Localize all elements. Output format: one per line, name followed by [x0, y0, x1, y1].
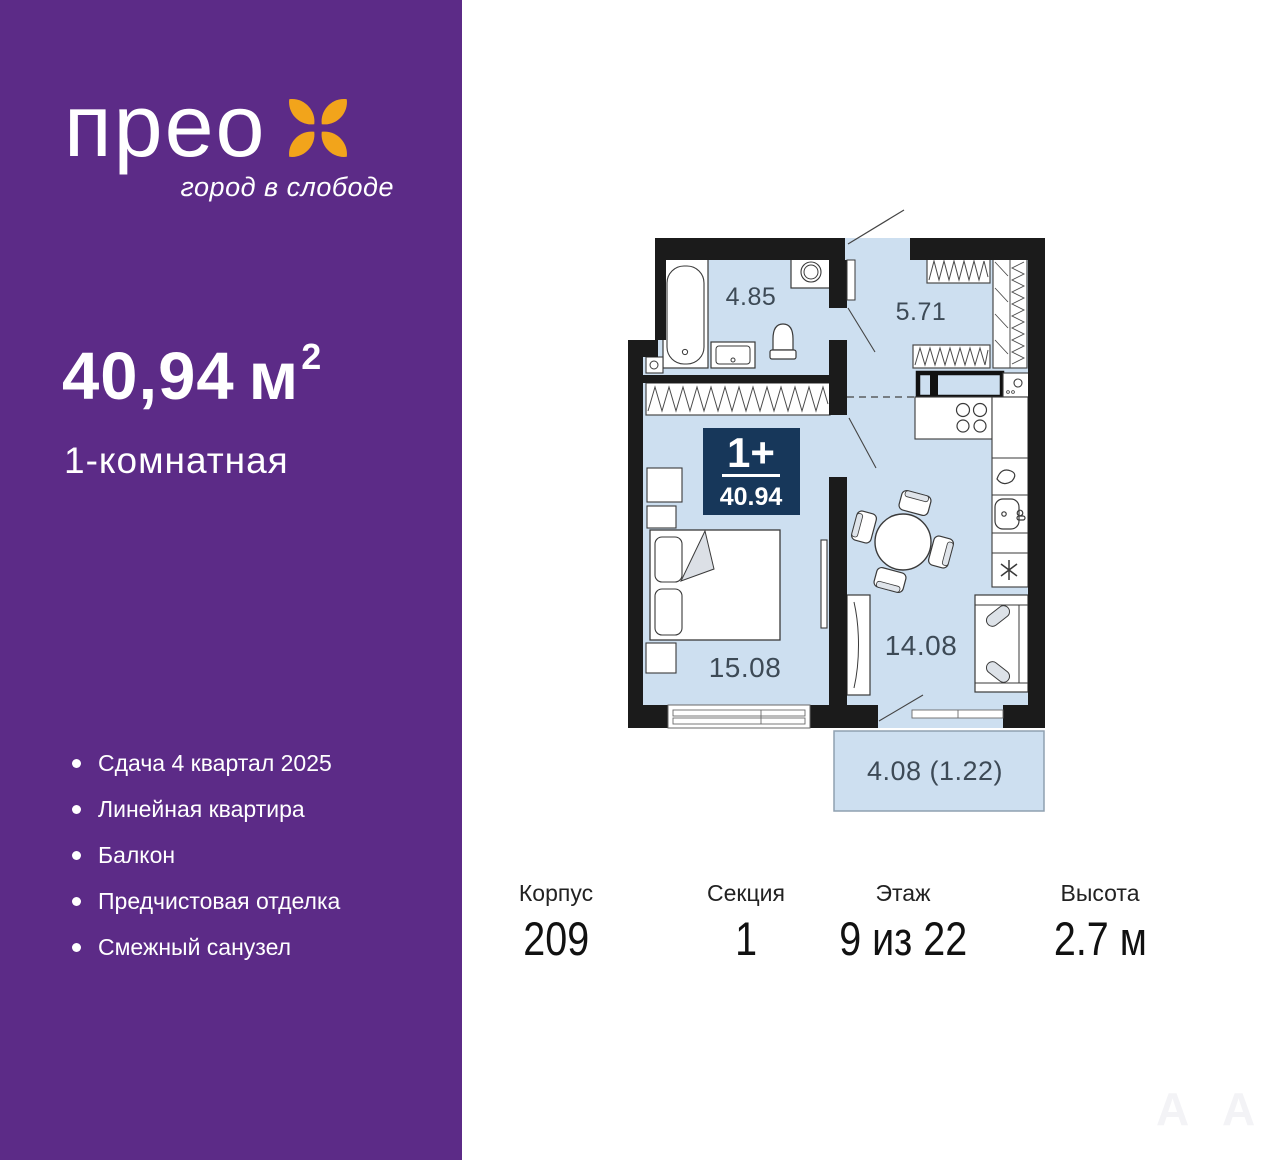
- spec-section: Секция 1: [666, 880, 826, 966]
- apartment-type: 1-комнатная: [64, 440, 289, 482]
- spec-value: 1: [735, 911, 757, 966]
- sofa-icon: [975, 595, 1028, 692]
- watermark-glyph: A: [1222, 1082, 1255, 1136]
- logo-text: прео: [64, 84, 266, 168]
- logo-flower-icon: [272, 82, 364, 174]
- apartment-card: прео город в слободе 40,94м2 1-комнатная…: [0, 0, 1280, 1160]
- spec-building: Корпус 209: [476, 880, 636, 966]
- feature-item: Балкон: [72, 842, 340, 869]
- badge-area: 40.94: [720, 483, 783, 511]
- spec-value: 2.7 м: [1053, 911, 1146, 966]
- feature-list: Сдача 4 квартал 2025 Линейная квартира Б…: [72, 750, 340, 980]
- plan-badge: 1+ 40.94: [703, 428, 800, 515]
- spec-height: Высота 2.7 м: [1020, 880, 1180, 966]
- bullet-icon: [72, 943, 81, 952]
- area-title: 40,94м2: [62, 336, 322, 415]
- bullet-icon: [72, 805, 81, 814]
- area-value: 40,94: [62, 339, 235, 414]
- bathroom-sink-icon: [711, 342, 755, 368]
- bullet-icon: [72, 897, 81, 906]
- spec-value: 9 из 22: [839, 911, 967, 966]
- feature-label: Смежный санузел: [98, 934, 291, 961]
- hallway-area-label: 5.71: [896, 298, 947, 326]
- wardrobe-icon: [646, 383, 830, 415]
- living-area-label: 14.08: [885, 630, 958, 661]
- feature-label: Линейная квартира: [98, 796, 305, 823]
- balcony-window: [912, 710, 1003, 718]
- bullet-icon: [72, 759, 81, 768]
- watermark-glyph: A: [1156, 1082, 1189, 1136]
- tv-console-icon: [847, 595, 870, 695]
- bathroom-area-label: 4.85: [726, 283, 777, 311]
- floor-plan: 4.08 (1.22): [628, 200, 1048, 820]
- bathroom-corner-box: [646, 357, 663, 373]
- balcony-area-label: 4.08 (1.22): [867, 756, 1003, 786]
- feature-label: Предчистовая отделка: [98, 888, 340, 915]
- feature-item: Линейная квартира: [72, 796, 340, 823]
- bullet-icon: [72, 851, 81, 860]
- bathtub-icon: [663, 258, 708, 368]
- spec-label: Корпус: [476, 880, 636, 907]
- spec-floor: Этаж 9 из 22: [823, 880, 983, 966]
- feature-item: Смежный санузел: [72, 934, 340, 961]
- spec-value: 209: [523, 911, 589, 966]
- balcony: 4.08 (1.22): [834, 731, 1044, 811]
- badge-rooms: 1+: [727, 429, 775, 476]
- spec-label: Высота: [1020, 880, 1180, 907]
- entrance-door-leaf: [847, 260, 855, 300]
- feature-item: Сдача 4 квартал 2025: [72, 750, 340, 777]
- tv-icon: [821, 540, 827, 628]
- kitchen-column: [992, 397, 1028, 587]
- area-sup: 2: [301, 336, 322, 377]
- bedroom-window: [668, 705, 810, 728]
- area-unit: м: [249, 339, 300, 414]
- logo: прео: [64, 84, 364, 174]
- bed-icon: [650, 530, 780, 640]
- logo-tagline: город в слободе: [64, 172, 394, 203]
- feature-item: Предчистовая отделка: [72, 888, 340, 915]
- bedroom-area-label: 15.08: [709, 652, 782, 683]
- feature-label: Сдача 4 квартал 2025: [98, 750, 332, 777]
- spec-label: Секция: [666, 880, 826, 907]
- spec-label: Этаж: [823, 880, 983, 907]
- stove-icon: [915, 397, 992, 439]
- washing-machine-icon: [791, 258, 831, 288]
- kitchen-counter-icon: [918, 373, 1030, 397]
- feature-label: Балкон: [98, 842, 175, 869]
- sidebar: прео город в слободе 40,94м2 1-комнатная…: [0, 0, 462, 1160]
